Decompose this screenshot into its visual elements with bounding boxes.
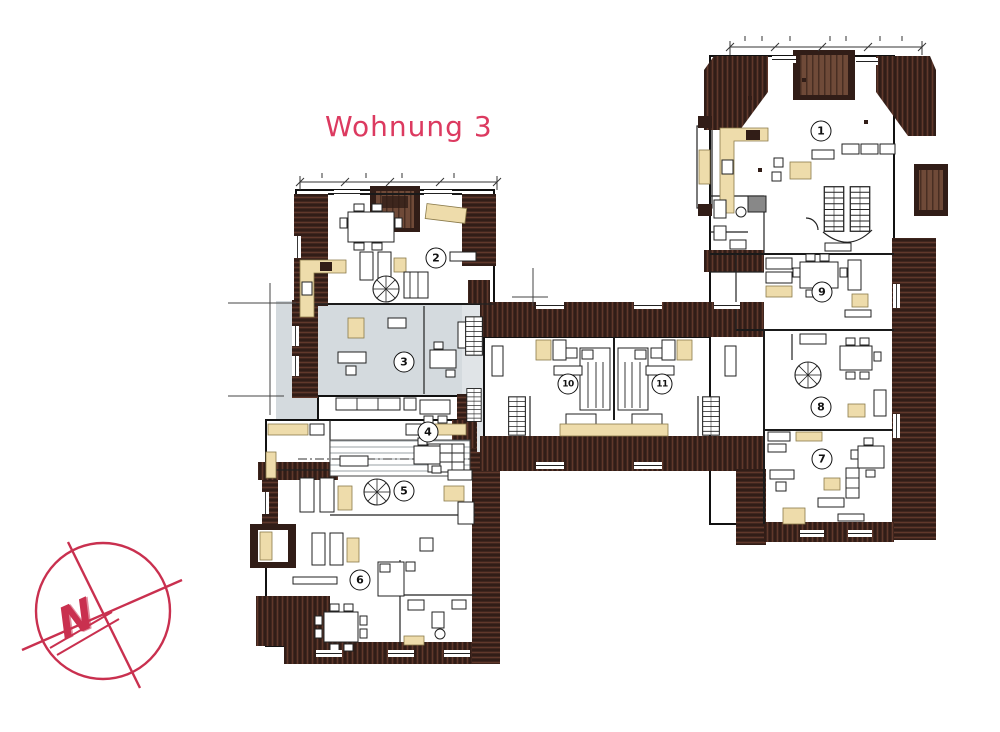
spiral-stair xyxy=(795,362,821,388)
room-number-badge-3: 3 xyxy=(394,352,415,373)
room-number-badge-10: 10 xyxy=(558,374,579,395)
floor-plan-page: Wohnung 3 N 1 2 3 4 5 6 7 8 9 10 11 xyxy=(0,0,1000,732)
room-number-badge-7: 7 xyxy=(812,449,833,470)
room-number-badge-11: 11 xyxy=(652,374,673,395)
dining-table xyxy=(324,612,358,642)
compass-axis-2 xyxy=(22,580,182,650)
spiral-stair xyxy=(373,276,399,302)
room-number-badge-8: 8 xyxy=(811,397,832,418)
dining-table xyxy=(840,346,872,370)
floor-plan-drawing xyxy=(0,0,1000,732)
room-number-badge-1: 1 xyxy=(811,121,832,142)
room-number-badge-9: 9 xyxy=(812,282,833,303)
bed xyxy=(783,508,805,524)
room-number-badge-6: 6 xyxy=(350,570,371,591)
compass-rose xyxy=(22,542,182,688)
room-number-badge-4: 4 xyxy=(418,422,439,443)
dining-table xyxy=(858,446,884,468)
stair-flight xyxy=(824,187,843,232)
spiral-stair xyxy=(364,479,390,505)
dining-table xyxy=(348,212,394,242)
room-number-badge-2: 2 xyxy=(426,248,447,269)
room-number-badge-5: 5 xyxy=(394,481,415,502)
stair-flight xyxy=(850,187,869,232)
plan-title: Wohnung 3 xyxy=(325,110,493,143)
